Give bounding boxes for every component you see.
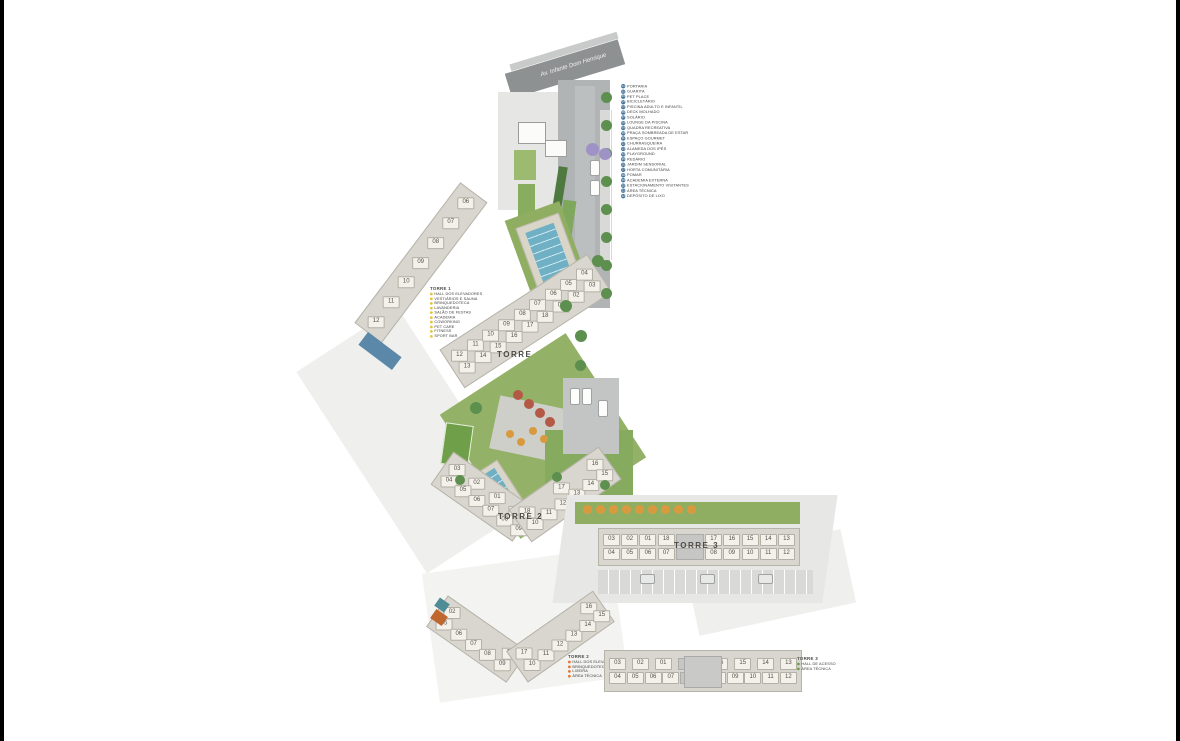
legend-number-marker: 19	[621, 178, 625, 182]
legend-bullet-icon	[430, 325, 433, 328]
gatehouse	[518, 122, 546, 144]
unit-number: 12	[780, 672, 797, 684]
legend-label: PET CARE	[434, 325, 454, 329]
unit-number: 14	[760, 534, 777, 546]
legend-item: SPORT BAR	[430, 334, 482, 338]
legend-number-marker: 09	[621, 126, 625, 130]
legend-label: SOLÁRIO	[627, 116, 645, 120]
legend-number-marker: 12	[621, 141, 625, 145]
legend-item: 02GUARITA	[621, 89, 689, 93]
legend-label: SPORT BAR	[434, 334, 457, 338]
tree-icon	[622, 505, 631, 514]
legend-number-marker: 20	[621, 183, 625, 187]
unit-number: 10	[742, 548, 759, 560]
tree-icon	[648, 505, 657, 514]
legend-number-marker: 03	[621, 94, 625, 98]
unit-number: 09	[723, 548, 740, 560]
gatehouse	[545, 140, 567, 157]
legend-item: 11ESPAÇO GOURMET	[621, 136, 689, 140]
legend-number-marker: 13	[621, 147, 625, 151]
unit-number: 09	[498, 319, 515, 331]
legend-item: 22DEPÓSITO DE LIXO	[621, 194, 689, 198]
unit-number: 14	[757, 658, 774, 670]
legend-label: LOUNGE DA PISCINA	[627, 121, 668, 125]
unit-number: 03	[603, 534, 620, 546]
tree-icon	[635, 505, 644, 514]
tree-icon	[455, 475, 465, 485]
legend-item: HALL DE ACESSO	[797, 662, 836, 666]
unit-number: 12	[451, 350, 468, 362]
legend-bullet-icon	[430, 302, 433, 305]
unit-number: 10	[482, 329, 499, 341]
legend-label: ESTACIONAMENTO VISITANTES	[627, 184, 689, 188]
legend-label: JARDIM SENSORIAL	[627, 163, 666, 167]
tree-icon	[524, 399, 534, 409]
tree-icon	[470, 402, 482, 414]
legend-item: 12CHURRASQUEIRA	[621, 141, 689, 145]
legend-label: BRINQUEDOTECA	[572, 665, 607, 669]
legend-item: PET CARE	[430, 325, 482, 329]
legend-label: LIXEIRA	[572, 669, 588, 673]
left-frame-bar	[0, 0, 4, 741]
legend-bullet-icon	[568, 670, 571, 673]
legend-number-marker: 16	[621, 162, 625, 166]
legend-item: 13ALAMEDA DOS IPÊS	[621, 147, 689, 151]
legend-title: TORRE 3	[797, 656, 836, 661]
unit-number: 06	[457, 197, 474, 209]
unit-number: 13	[780, 658, 797, 670]
legend-item: COWORKING	[430, 320, 482, 324]
unit-number: 17	[521, 321, 538, 333]
tree-icon	[661, 505, 670, 514]
tree-icon	[586, 143, 599, 156]
tree-icon	[535, 408, 545, 418]
unit-number: 13	[778, 534, 795, 546]
legend-number-marker: 07	[621, 115, 625, 119]
legend-bullet-icon	[430, 297, 433, 300]
unit-number: 07	[662, 672, 679, 684]
legend-label: HALL DOS ELEVADORES	[434, 292, 482, 296]
unit-number: 06	[639, 548, 656, 560]
tree-icon	[601, 120, 612, 131]
legend-item: ACADEMIA	[430, 315, 482, 319]
right-frame-bar	[1176, 0, 1180, 741]
legend-number-marker: 11	[621, 136, 625, 140]
legend-bullet-icon	[797, 667, 800, 670]
tree-icon	[560, 300, 572, 312]
legend-title: TORRE 1	[430, 286, 482, 291]
legend-item: LAVANDERIA	[430, 306, 482, 310]
legend-item: 18POMAR	[621, 173, 689, 177]
legend-item: 09QUADRA RECREATIVA	[621, 126, 689, 130]
unit-number: 04	[576, 269, 593, 281]
legend-number-marker: 22	[621, 194, 625, 198]
unit-number: 04	[609, 672, 626, 684]
legend-item: 06DECK MOLHADO	[621, 110, 689, 114]
unit-number: 15	[734, 658, 751, 670]
tree-icon	[674, 505, 683, 514]
legend-number-marker: 04	[621, 100, 625, 104]
unit-number: 10	[398, 277, 415, 289]
unit-number: 03	[609, 658, 626, 670]
unit-number: 18	[537, 311, 554, 323]
legend-item: 15REDÁRIO	[621, 157, 689, 161]
legend-item: 10PRAÇA SOMBREADA DE ESTAR	[621, 131, 689, 135]
main-legend: 01PORTARIA02GUARITA03PET PLACE04BICICLET…	[621, 84, 689, 199]
legend-bullet-icon	[430, 311, 433, 314]
legend-item: ÁREA TÉCNICA	[797, 667, 836, 671]
unit-number: 05	[627, 672, 644, 684]
tree-icon	[596, 505, 605, 514]
tree-icon	[545, 417, 555, 427]
legend-label: GUARITA	[627, 90, 645, 94]
site-plan-canvas: Av. Infante Dom Henrique 01PORTARIA02GUA…	[0, 0, 1180, 741]
unit-number: 01	[488, 492, 505, 504]
unit-number: 06	[545, 289, 562, 301]
legend-item: 21ÁREA TÉCNICA	[621, 189, 689, 193]
legend-number-marker: 06	[621, 110, 625, 114]
unit-number: 03	[584, 280, 601, 292]
tree-icon	[506, 430, 514, 438]
legend-item: 03PET PLACE	[621, 94, 689, 98]
unit-number: 05	[560, 279, 577, 291]
car	[640, 574, 655, 584]
tree-icon	[575, 360, 586, 371]
unit-number: 07	[658, 548, 675, 560]
unit-number: 09	[494, 659, 511, 671]
legend-number-marker: 14	[621, 152, 625, 156]
tree-icon	[609, 505, 618, 514]
legend-label: HORTA COMUNITÁRIA	[627, 168, 670, 172]
legend-bullet-icon	[568, 665, 571, 668]
unit-number: 08	[427, 237, 444, 249]
car	[582, 388, 592, 405]
unit-number: 11	[383, 296, 400, 308]
car	[590, 180, 600, 196]
tree-icon	[529, 427, 537, 435]
unit-number: 11	[762, 672, 779, 684]
tree-icon	[540, 435, 548, 443]
legend-label: PET PLACE	[627, 95, 649, 99]
legend-label: DECK MOLHADO	[627, 110, 660, 114]
legend-bullet-icon	[430, 293, 433, 296]
torre3-label: TORRE 3	[674, 541, 719, 550]
legend-bullet-icon	[797, 663, 800, 666]
legend-item: HALL DOS ELEVADORES	[430, 292, 482, 296]
unit-number: 01	[655, 658, 672, 670]
legend-label: QUADRA RECREATIVA	[627, 126, 670, 130]
legend-item: 07SOLÁRIO	[621, 115, 689, 119]
legend-label: ESPAÇO GOURMET	[627, 137, 665, 141]
legend-item: SALÃO DE FESTAS	[430, 311, 482, 315]
unit-number: 08	[513, 309, 530, 321]
legend-bullet-icon	[430, 307, 433, 310]
legend-label: ÁREA TÉCNICA	[572, 674, 601, 678]
legend-label: PLAYGROUND	[627, 152, 655, 156]
legend-number-marker: 05	[621, 105, 625, 109]
unit-number: 18	[658, 534, 675, 546]
tree-icon	[601, 232, 612, 243]
car	[758, 574, 773, 584]
tree-icon	[600, 480, 610, 490]
legend-bullet-icon	[430, 316, 433, 319]
legend-label: ALAMEDA DOS IPÊS	[627, 147, 666, 151]
legend-number-marker: 08	[621, 121, 625, 125]
unit-number: 17	[516, 648, 533, 660]
legend-number-marker: 18	[621, 173, 625, 177]
legend-label: PISCINA ADULTO E INFANTIL	[627, 105, 683, 109]
legend-label: BRINQUEDOTECA	[434, 301, 469, 305]
legend-number-marker: 21	[621, 189, 625, 193]
legend-item: 20ESTACIONAMENTO VISITANTES	[621, 183, 689, 187]
car	[570, 388, 580, 405]
legend-label: BICICLETÁRIO	[627, 100, 655, 104]
tree-icon	[601, 204, 612, 215]
unit-number: 01	[639, 534, 656, 546]
legend-bullet-icon	[430, 321, 433, 324]
legend-label: PRAÇA SOMBREADA DE ESTAR	[627, 131, 688, 135]
unit-number: 13	[459, 362, 476, 374]
unit-number: 16	[723, 534, 740, 546]
unit-number: 05	[621, 548, 638, 560]
legend-bullet-icon	[568, 661, 571, 664]
legend-number-marker: 15	[621, 157, 625, 161]
unit-number: 02	[568, 291, 585, 303]
car	[700, 574, 715, 584]
legend-label: DEPÓSITO DE LIXO	[627, 194, 665, 198]
tree-icon	[575, 330, 587, 342]
legend-number-marker: 02	[621, 89, 625, 93]
unit-number: 02	[632, 658, 649, 670]
legend-item: 17HORTA COMUNITÁRIA	[621, 168, 689, 172]
unit-number: 11	[467, 340, 484, 352]
legend-label: ACADEMIA EXTERNA	[627, 178, 668, 182]
unit-number: 02	[621, 534, 638, 546]
tree-icon	[601, 92, 612, 103]
legend-number-marker: 01	[621, 84, 625, 88]
unit-number: 10	[744, 672, 761, 684]
legend-bullet-icon	[568, 675, 571, 678]
tree-icon	[513, 390, 523, 400]
legend-item: 01PORTARIA	[621, 84, 689, 88]
legend-item: 05PISCINA ADULTO E INFANTIL	[621, 105, 689, 109]
legend-item: 16JARDIM SENSORIAL	[621, 162, 689, 166]
tree-icon	[552, 472, 562, 482]
car	[598, 400, 608, 417]
unit-number: 16	[505, 331, 522, 343]
car	[590, 160, 600, 176]
unit-number: 12	[368, 316, 385, 328]
legend-label: VESTIÁRIOS E SAUNA	[434, 297, 477, 301]
unit-number: 09	[412, 257, 429, 269]
legend-label: ÁREA TÉCNICA	[801, 667, 830, 671]
legend-number-marker: 17	[621, 168, 625, 172]
unit-number: 12	[778, 548, 795, 560]
unit-number: 15	[742, 534, 759, 546]
unit-number: 17	[553, 483, 570, 495]
legend-label: LAVANDERIA	[434, 306, 459, 310]
legend-label: COWORKING	[434, 320, 460, 324]
tree-icon	[601, 176, 612, 187]
unit-number: 09	[727, 672, 744, 684]
unit-number: 06	[645, 672, 662, 684]
legend-label: CHURRASQUEIRA	[627, 142, 662, 146]
unit-number: 15	[593, 610, 610, 622]
garden-patch	[514, 150, 536, 180]
legend-label: HALL DE ACESSO	[801, 662, 835, 666]
torre3-plan-core	[684, 656, 722, 688]
torre2-label: TORRE 2	[498, 512, 543, 521]
legend-item: 08LOUNGE DA PISCINA	[621, 121, 689, 125]
legend-item: VESTIÁRIOS E SAUNA	[430, 297, 482, 301]
legend-bullet-icon	[430, 330, 433, 333]
unit-number: 03	[449, 464, 466, 476]
legend-label: ACADEMIA	[434, 315, 455, 319]
legend-item: FITNESS	[430, 329, 482, 333]
unit-number: 14	[474, 351, 491, 363]
legend-item: 19ACADEMIA EXTERNA	[621, 178, 689, 182]
legend-label: ÁREA TÉCNICA	[627, 189, 656, 193]
legend-item: 04BICICLETÁRIO	[621, 100, 689, 104]
unit-number: 07	[442, 217, 459, 229]
unit-number: 11	[760, 548, 777, 560]
torre1-plan-legend: TORRE 1HALL DOS ELEVADORESVESTIÁRIOS E S…	[430, 286, 482, 339]
legend-label: PORTARIA	[627, 84, 647, 88]
unit-number: 04	[603, 548, 620, 560]
legend-label: POMAR	[627, 173, 642, 177]
tree-icon	[583, 505, 592, 514]
legend-item: BRINQUEDOTECA	[430, 301, 482, 305]
tree-icon	[599, 148, 611, 160]
tree-icon	[601, 288, 612, 299]
tree-icon	[517, 438, 525, 446]
tree-icon	[687, 505, 696, 514]
legend-label: SALÃO DE FESTAS	[434, 311, 471, 315]
legend-label: REDÁRIO	[627, 157, 645, 161]
legend-label: FITNESS	[434, 329, 451, 333]
legend-item: 14PLAYGROUND	[621, 152, 689, 156]
torre3-plan-legend: TORRE 3HALL DE ACESSOÁREA TÉCNICA	[797, 656, 836, 671]
legend-bullet-icon	[430, 335, 433, 338]
tree-icon	[592, 255, 604, 267]
legend-number-marker: 10	[621, 131, 625, 135]
unit-number: 07	[529, 299, 546, 311]
